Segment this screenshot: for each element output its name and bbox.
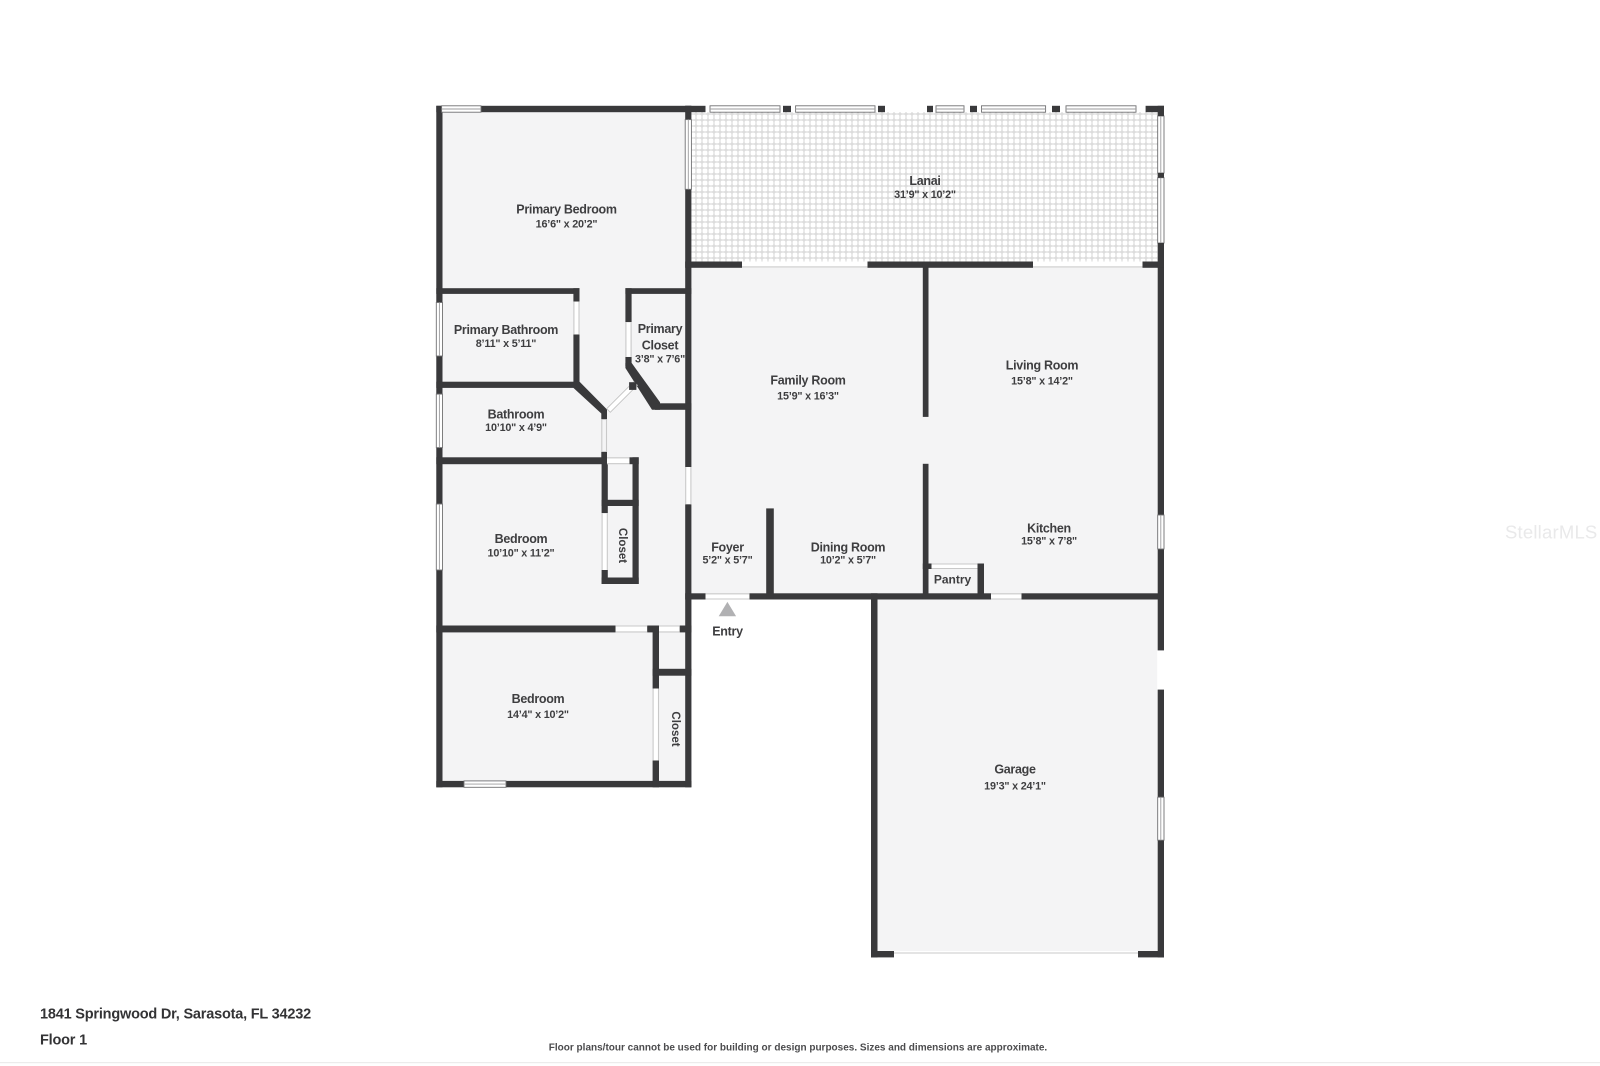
svg-text:Bedroom: Bedroom <box>495 532 548 546</box>
svg-text:8’11" x 5’11": 8’11" x 5’11" <box>476 338 537 350</box>
svg-text:Living Room: Living Room <box>1006 359 1079 373</box>
svg-text:Primary Bedroom: Primary Bedroom <box>516 203 617 217</box>
svg-text:Closet: Closet <box>642 339 680 353</box>
svg-text:14’4" x 10’2": 14’4" x 10’2" <box>507 709 569 721</box>
svg-text:31’9" x 10’2": 31’9" x 10’2" <box>894 189 956 201</box>
svg-text:Closet: Closet <box>616 528 628 563</box>
svg-text:Primary Bathroom: Primary Bathroom <box>454 323 558 337</box>
svg-text:Entry: Entry <box>712 625 743 639</box>
svg-text:Floor plans/tour cannot be use: Floor plans/tour cannot be used for buil… <box>549 1043 1048 1054</box>
svg-text:Pantry: Pantry <box>934 573 972 587</box>
svg-text:Bathroom: Bathroom <box>488 408 545 422</box>
svg-text:Foyer: Foyer <box>711 541 744 555</box>
svg-text:15’9" x 16’3": 15’9" x 16’3" <box>777 391 839 403</box>
svg-text:16’6" x 20’2": 16’6" x 20’2" <box>536 219 598 231</box>
svg-text:Bedroom: Bedroom <box>512 692 565 706</box>
svg-text:10’10" x 4’9": 10’10" x 4’9" <box>485 422 547 434</box>
svg-text:Floor 1: Floor 1 <box>40 1033 87 1049</box>
svg-text:10’2" x 5’7": 10’2" x 5’7" <box>820 555 876 567</box>
svg-text:Family Room: Family Room <box>770 374 845 388</box>
svg-text:1841 Springwood Dr, Sarasota,: 1841 Springwood Dr, Sarasota, FL 34232 <box>40 1007 311 1023</box>
svg-text:3’8" x 7’6": 3’8" x 7’6" <box>635 354 685 366</box>
svg-text:Dining Room: Dining Room <box>811 541 886 555</box>
svg-text:19’3" x 24’1": 19’3" x 24’1" <box>984 781 1046 793</box>
svg-text:Garage: Garage <box>994 763 1036 777</box>
svg-text:Lanai: Lanai <box>909 174 940 188</box>
svg-text:15’8" x 14’2": 15’8" x 14’2" <box>1011 376 1073 388</box>
svg-text:Kitchen: Kitchen <box>1027 522 1071 536</box>
svg-text:Primary: Primary <box>638 322 683 336</box>
svg-text:StellarMLS: StellarMLS <box>1505 522 1597 543</box>
svg-text:Closet: Closet <box>669 711 681 746</box>
svg-text:15’8" x 7’8": 15’8" x 7’8" <box>1021 536 1077 548</box>
svg-text:10’10" x 11’2": 10’10" x 11’2" <box>488 548 555 560</box>
svg-text:5’2" x 5’7": 5’2" x 5’7" <box>702 555 752 567</box>
